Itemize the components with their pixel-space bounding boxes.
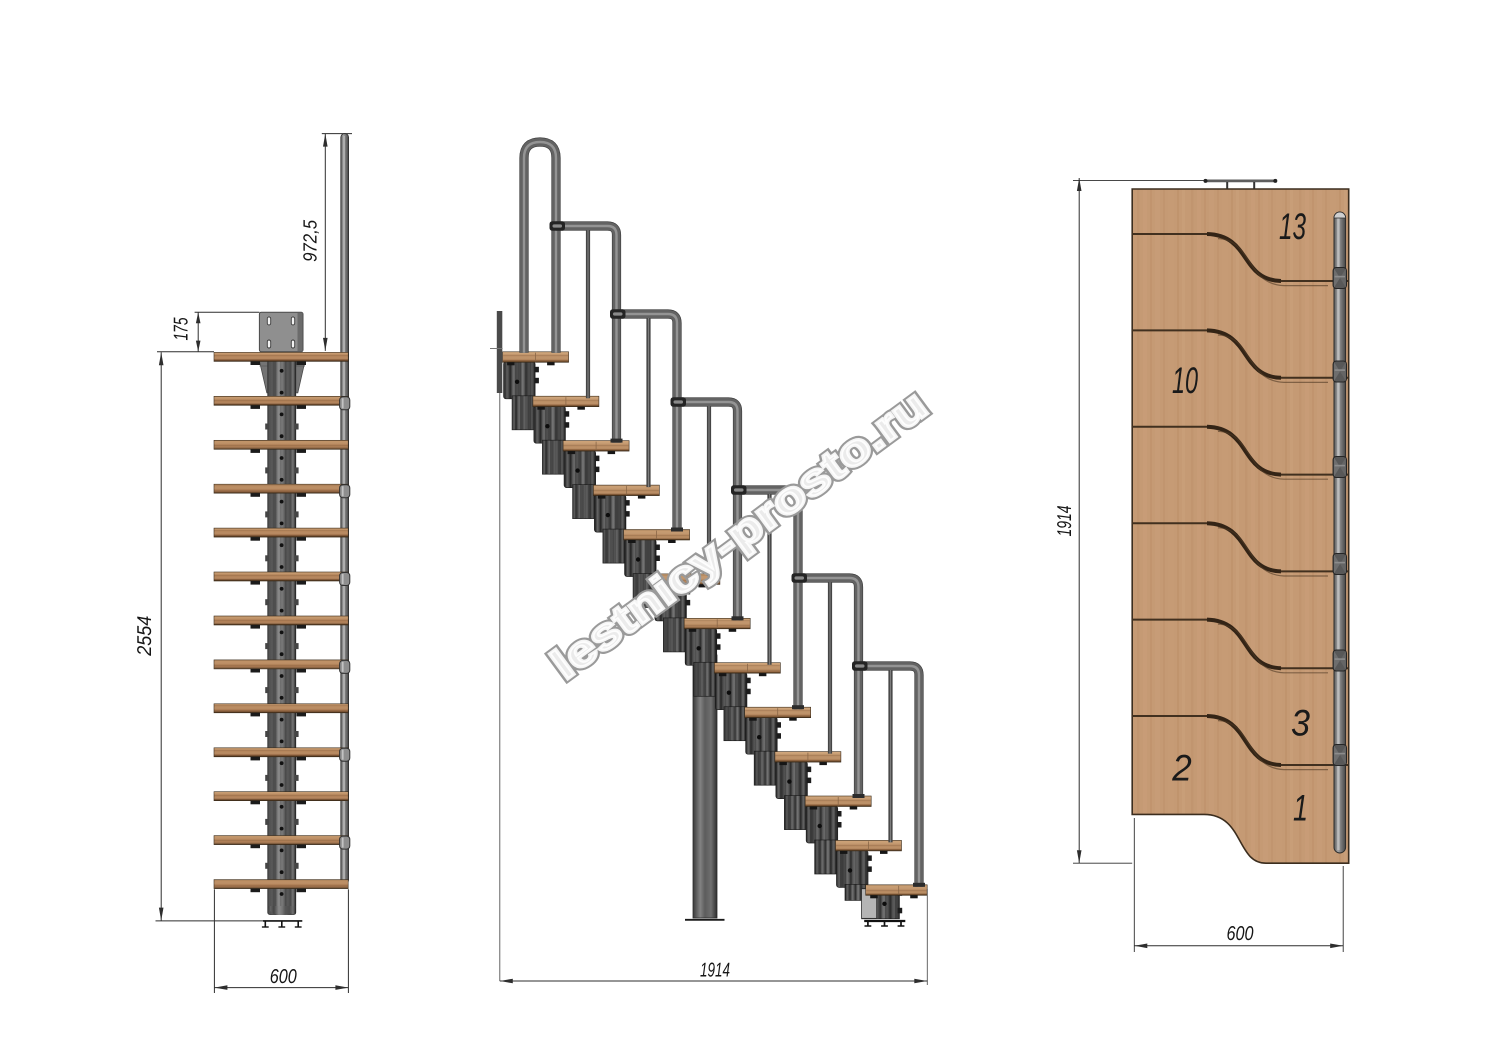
svg-text:600: 600 xyxy=(1227,923,1254,945)
svg-text:2554: 2554 xyxy=(134,616,156,657)
svg-text:1914: 1914 xyxy=(1054,506,1076,537)
svg-text:1914: 1914 xyxy=(700,959,730,981)
svg-text:175: 175 xyxy=(171,317,193,341)
svg-text:1: 1 xyxy=(1293,788,1308,829)
svg-text:2: 2 xyxy=(1171,748,1192,789)
svg-text:10: 10 xyxy=(1172,360,1198,401)
svg-text:13: 13 xyxy=(1279,206,1306,247)
svg-text:3: 3 xyxy=(1291,703,1310,744)
svg-text:600: 600 xyxy=(270,966,297,988)
svg-text:972,5: 972,5 xyxy=(301,220,322,262)
